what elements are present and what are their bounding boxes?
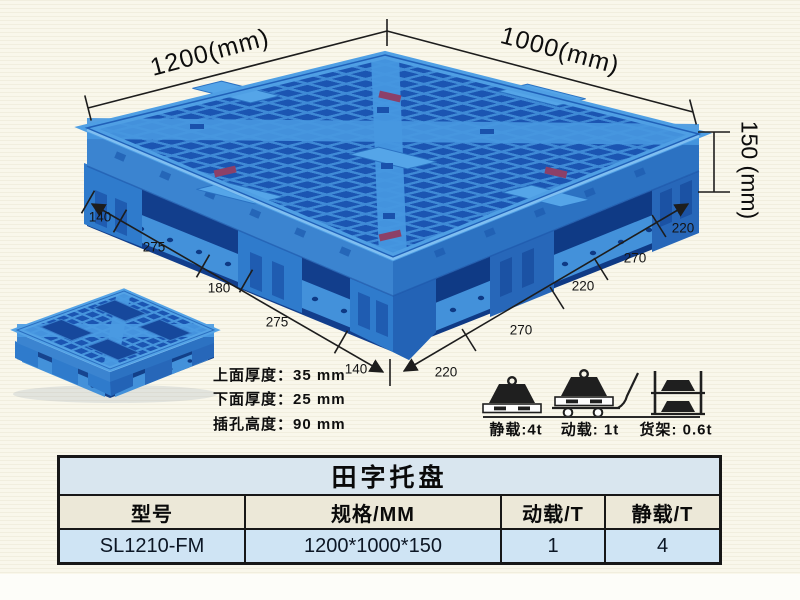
dynamic-load-label: 动载: 1t	[561, 419, 620, 440]
static-load-label: 静载:4t	[489, 419, 542, 440]
left-segment-label-1: 140	[89, 210, 112, 225]
spec-table-title: 田字托盘	[60, 458, 719, 494]
right-segment-label-5: 220	[435, 365, 458, 380]
right-segment-label-4: 270	[510, 323, 533, 338]
dimension-height-label: 150 (mm)	[736, 121, 763, 219]
left-segment-label-2: 275	[143, 240, 166, 255]
dynamic-load-icon	[552, 370, 638, 417]
left-segment-label-5: 140	[345, 362, 368, 377]
static-load-value: 4	[604, 530, 719, 562]
dynamic-load-value: 1	[500, 530, 604, 562]
rack-load-icon	[651, 371, 705, 415]
left-segment-label-3: 180	[208, 281, 231, 296]
spec-table-data-row: SL1210-FM 1200*1000*150 1 4	[60, 528, 719, 562]
model-value: SL1210-FM	[60, 530, 244, 562]
column-header-dynamic-load: 动载/T	[500, 496, 604, 528]
column-header-static-load: 静载/T	[604, 496, 719, 528]
top-thickness-note: 上面厚度：35 mm	[213, 364, 346, 385]
fork-slot-height-note: 插孔高度：90 mm	[213, 413, 346, 434]
rack-load-label: 货架: 0.6t	[639, 419, 712, 440]
right-segment-label-3: 220	[572, 279, 595, 294]
spec-table: 田字托盘 型号 规格/MM 动载/T 静载/T SL1210-FM 1200*1…	[57, 455, 722, 565]
bottom-thickness-note: 下面厚度：25 mm	[213, 388, 346, 409]
size-value: 1200*1000*150	[244, 530, 500, 562]
column-header-model: 型号	[60, 496, 244, 528]
column-header-size: 规格/MM	[244, 496, 500, 528]
load-rating-icons	[483, 370, 705, 417]
small-pallet-bottom-view	[13, 291, 217, 403]
pallet-spec-sheet: 1200(mm) 1000(mm) 150 (mm) 140 275 180 2…	[0, 0, 800, 600]
right-segment-label-1: 220	[672, 221, 695, 236]
right-segment-label-2: 270	[624, 251, 647, 266]
spec-table-header-row: 型号 规格/MM 动载/T 静载/T	[60, 494, 719, 528]
left-segment-label-4: 275	[266, 315, 289, 330]
static-load-icon	[483, 377, 541, 412]
